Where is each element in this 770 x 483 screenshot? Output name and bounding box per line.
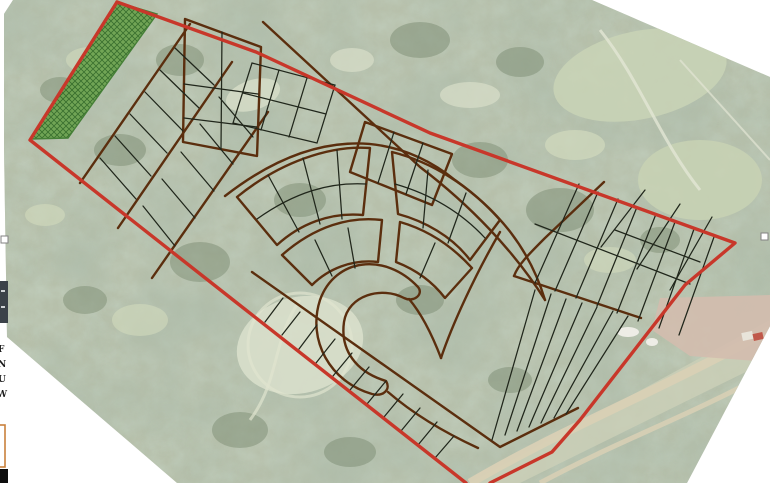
selection-handle-right[interactable] bbox=[761, 233, 768, 240]
clipped-text-fragment: U bbox=[0, 375, 6, 385]
clipped-text-fragment: W bbox=[0, 390, 8, 400]
orange-outline-box bbox=[0, 425, 5, 467]
black-bar bbox=[0, 469, 8, 483]
clipped-text-fragment: F bbox=[0, 345, 5, 355]
dark-legend-block bbox=[0, 281, 8, 323]
map-viewport[interactable]: F N U W bbox=[0, 0, 770, 483]
selection-handle-left[interactable] bbox=[1, 236, 8, 243]
left-margin-artifacts: F N U W bbox=[0, 281, 8, 483]
clipped-text-fragment: N bbox=[0, 360, 6, 370]
